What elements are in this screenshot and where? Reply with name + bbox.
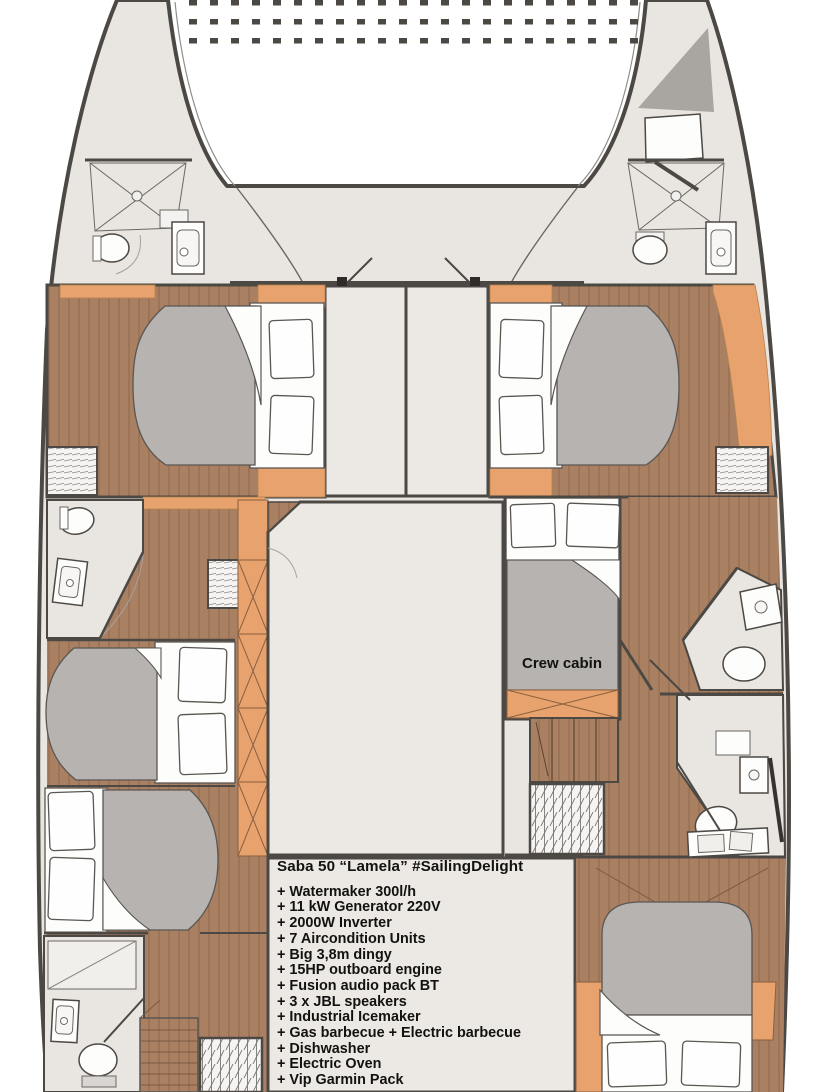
feature-item: + Fusion audio pack BT [277,979,571,995]
feature-item: + Vip Garmin Pack [277,1073,571,1089]
feature-item: + 11 kW Generator 220V [277,900,571,916]
feature-item: + 2000W Inverter [277,916,571,932]
cabin-mid-port [46,640,235,783]
feature-item: + 7 Aircondition Units [277,932,571,948]
feature-item: + Industrial Icemaker [277,1010,571,1026]
catamaran-floorplan: Crew cabin Saba 50 “Lamela” #SailingDeli… [0,0,825,1092]
feature-item: + 3 x JBL speakers [277,995,571,1011]
trampoline-lacing [180,0,642,47]
feature-item: + Big 3,8m dingy [277,948,571,964]
boat-title: Saba 50 “Lamela” #SailingDelight [277,859,571,875]
feature-list: + Watermaker 300l/h + 11 kW Generator 22… [277,885,571,1089]
locker-column-port [238,500,268,856]
crew-cabin-label: Crew cabin [505,655,619,672]
feature-item: + Electric Oven [277,1057,571,1073]
feature-item: + Dishwasher [277,1042,571,1058]
cabin-aft-starboard [576,828,786,1092]
specs-panel: Saba 50 “Lamela” #SailingDelight + Water… [277,859,571,1089]
feature-item: + Gas barbecue + Electric barbecue [277,1026,571,1042]
feature-item: + 15HP outboard engine [277,963,571,979]
feature-item: + Watermaker 300l/h [277,885,571,901]
bathroom-aft-port [44,936,144,1092]
cabin-forward-port [47,285,325,497]
